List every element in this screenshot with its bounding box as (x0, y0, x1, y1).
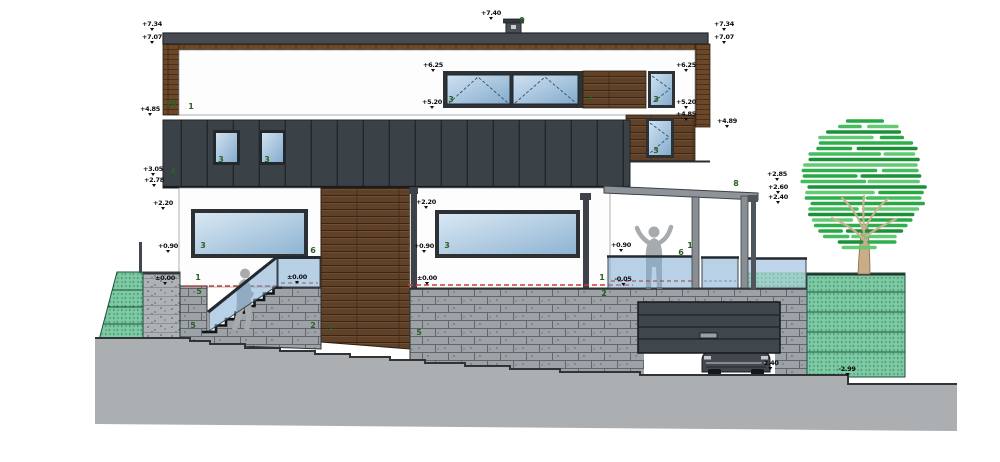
fence-post (139, 242, 142, 273)
flat-roof (163, 33, 708, 50)
left-wood-pillar (163, 44, 179, 115)
terrace-railing (607, 257, 807, 289)
concrete-wall-left (143, 272, 180, 341)
garage-door (638, 302, 780, 353)
car-silhouette (702, 351, 770, 375)
right-wood-pillar (695, 44, 710, 127)
wood-clad-volume (321, 188, 410, 349)
top-floor-window-band (443, 71, 675, 108)
chimney (504, 19, 524, 34)
green-retaining-wall-left (99, 272, 143, 340)
ground-floor-middle-wall (410, 188, 610, 288)
elevation-drawing (0, 0, 1000, 462)
green-retaining-wall-right (807, 273, 905, 377)
elevation-sheet: +7.34+7.07+4.85+3.05+2.78+2.20+0.90±0.00… (0, 0, 1000, 462)
second-floor-cladding (163, 120, 630, 188)
tree (802, 121, 925, 274)
